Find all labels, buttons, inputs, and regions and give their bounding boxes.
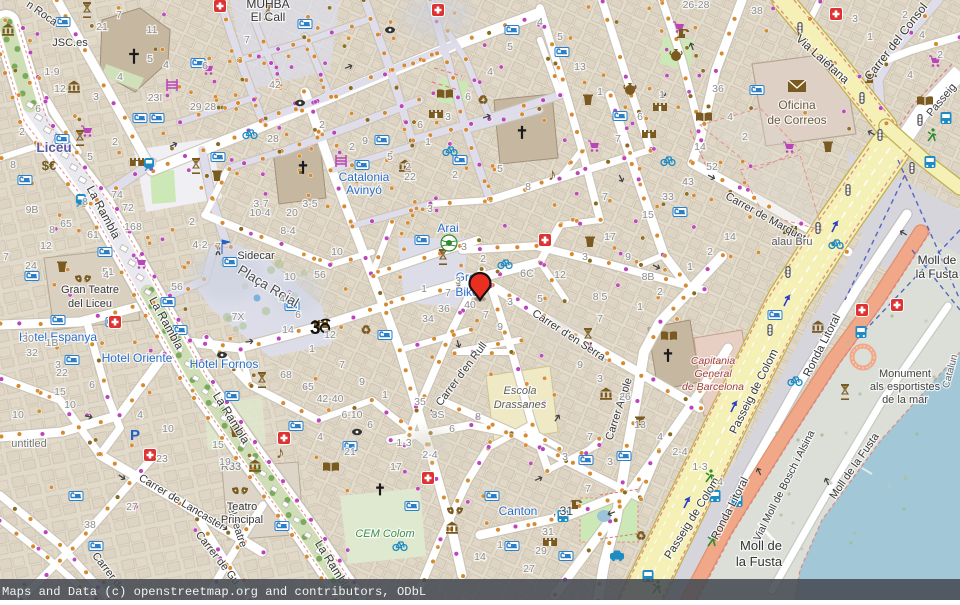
svg-text:Capitania: Capitania xyxy=(691,355,736,367)
svg-text:13: 13 xyxy=(634,419,646,431)
svg-text:10: 10 xyxy=(12,409,24,421)
svg-text:7: 7 xyxy=(483,309,489,321)
svg-text:de Barcelona: de Barcelona xyxy=(682,381,744,393)
svg-text:15: 15 xyxy=(54,386,66,398)
svg-text:P: P xyxy=(130,427,140,444)
svg-text:del Liceu: del Liceu xyxy=(68,298,112,310)
svg-text:General: General xyxy=(694,368,732,380)
svg-text:24: 24 xyxy=(25,260,37,272)
svg-text:JSC.es: JSC.es xyxy=(52,37,88,49)
svg-text:12: 12 xyxy=(54,83,66,95)
svg-text:36: 36 xyxy=(712,83,724,95)
svg-text:42-40: 42-40 xyxy=(317,393,344,405)
svg-text:4: 4 xyxy=(487,66,493,78)
svg-text:4: 4 xyxy=(137,409,143,421)
svg-text:Liceu: Liceu xyxy=(36,140,71,155)
svg-text:43: 43 xyxy=(682,176,694,188)
svg-text:3: 3 xyxy=(445,111,451,123)
svg-text:El Call: El Call xyxy=(251,10,286,24)
svg-text:la Fusta: la Fusta xyxy=(916,267,959,281)
svg-text:Moll de: Moll de xyxy=(918,253,957,267)
svg-text:72: 72 xyxy=(122,202,134,214)
svg-text:10: 10 xyxy=(284,271,296,283)
svg-text:9: 9 xyxy=(362,135,368,147)
svg-text:Teatro: Teatro xyxy=(227,501,258,513)
svg-text:38: 38 xyxy=(751,5,763,17)
svg-text:7: 7 xyxy=(445,287,451,299)
svg-text:3: 3 xyxy=(310,318,321,339)
svg-text:32: 32 xyxy=(26,347,38,359)
svg-text:1: 1 xyxy=(382,389,388,401)
svg-text:6C: 6C xyxy=(520,268,534,280)
svg-text:3: 3 xyxy=(455,275,461,287)
svg-text:38: 38 xyxy=(84,519,96,531)
svg-text:4: 4 xyxy=(919,29,925,41)
svg-text:1: 1 xyxy=(309,343,315,355)
svg-text:1: 1 xyxy=(687,261,693,273)
svg-text:Gran Teatre: Gran Teatre xyxy=(61,284,119,296)
svg-text:als esportistes: als esportistes xyxy=(870,381,941,393)
svg-text:6: 6 xyxy=(35,103,41,115)
svg-text:5: 5 xyxy=(557,31,563,43)
svg-text:14: 14 xyxy=(282,324,294,336)
svg-text:Principal: Principal xyxy=(221,514,263,526)
svg-text:35: 35 xyxy=(414,396,426,408)
svg-text:4: 4 xyxy=(317,431,323,443)
svg-text:4: 4 xyxy=(537,16,543,28)
svg-text:4: 4 xyxy=(727,111,733,123)
svg-text:21: 21 xyxy=(96,21,108,33)
svg-text:15: 15 xyxy=(642,209,654,221)
svg-text:33: 33 xyxy=(662,191,674,203)
svg-text:17: 17 xyxy=(604,231,616,243)
svg-text:5: 5 xyxy=(507,41,513,53)
svg-text:Canton: Canton xyxy=(499,504,538,518)
svg-text:2: 2 xyxy=(452,169,458,181)
svg-text:2: 2 xyxy=(742,131,748,143)
svg-text:7: 7 xyxy=(602,191,608,203)
svg-text:52: 52 xyxy=(706,161,718,173)
svg-text:6: 6 xyxy=(202,60,208,72)
svg-text:8: 8 xyxy=(475,411,481,423)
svg-text:4: 4 xyxy=(163,59,169,71)
svg-text:6: 6 xyxy=(449,423,455,435)
svg-text:2: 2 xyxy=(480,253,486,265)
svg-text:5: 5 xyxy=(387,151,393,163)
svg-text:Avinyó: Avinyó xyxy=(346,183,382,197)
svg-text:26: 26 xyxy=(619,391,631,403)
svg-text:2: 2 xyxy=(19,126,25,138)
svg-text:8: 8 xyxy=(525,181,531,193)
svg-text:4: 4 xyxy=(907,69,913,81)
svg-text:68: 68 xyxy=(280,369,292,381)
svg-text:6: 6 xyxy=(417,119,423,131)
svg-text:56: 56 xyxy=(171,281,183,293)
svg-text:6: 6 xyxy=(367,419,373,431)
svg-text:9: 9 xyxy=(625,251,631,263)
svg-text:11: 11 xyxy=(147,24,158,36)
svg-text:Escola: Escola xyxy=(503,385,536,397)
svg-text:7X: 7X xyxy=(232,311,245,323)
svg-text:14: 14 xyxy=(724,231,736,243)
svg-text:2: 2 xyxy=(902,9,908,21)
svg-text:2: 2 xyxy=(707,246,713,258)
svg-text:1: 1 xyxy=(597,86,603,98)
svg-text:3: 3 xyxy=(582,251,588,263)
svg-text:31: 31 xyxy=(542,526,554,538)
svg-text:36: 36 xyxy=(438,303,450,315)
svg-text:23: 23 xyxy=(156,453,168,465)
svg-text:2-4: 2-4 xyxy=(672,446,687,458)
svg-text:2: 2 xyxy=(937,49,943,61)
svg-text:3: 3 xyxy=(607,456,613,468)
svg-text:3: 3 xyxy=(507,296,513,308)
svg-text:29 28: 29 28 xyxy=(190,101,216,113)
svg-text:13: 13 xyxy=(574,61,586,73)
svg-text:19: 19 xyxy=(219,456,231,468)
svg-text:1-3: 1-3 xyxy=(692,461,707,473)
svg-text:2: 2 xyxy=(405,161,411,173)
svg-text:21: 21 xyxy=(344,446,356,458)
svg-text:CEM Colom: CEM Colom xyxy=(355,528,414,540)
svg-text:15: 15 xyxy=(212,439,224,451)
svg-text:9: 9 xyxy=(577,359,583,371)
svg-text:♻: ♻ xyxy=(478,93,489,107)
svg-text:8B: 8B xyxy=(642,271,655,283)
svg-text:14: 14 xyxy=(474,551,486,563)
svg-text:30: 30 xyxy=(22,333,34,345)
svg-text:Hotel Oriente: Hotel Oriente xyxy=(102,351,173,365)
svg-text:26-28: 26-28 xyxy=(683,0,710,11)
svg-text:9: 9 xyxy=(359,376,365,388)
svg-text:Hotel Fornos: Hotel Fornos xyxy=(190,357,259,371)
svg-text:7: 7 xyxy=(587,431,593,443)
svg-text:17: 17 xyxy=(390,461,402,473)
svg-text:3: 3 xyxy=(852,13,858,25)
svg-text:23I: 23I xyxy=(148,92,163,104)
svg-text:40: 40 xyxy=(464,299,476,311)
svg-text:7: 7 xyxy=(597,313,603,325)
svg-text:8-4: 8-4 xyxy=(280,225,295,237)
svg-text:4-2: 4-2 xyxy=(192,239,207,251)
svg-text:3S: 3S xyxy=(432,409,445,421)
svg-text:7: 7 xyxy=(3,251,9,263)
svg-text:7: 7 xyxy=(585,483,591,495)
svg-text:2: 2 xyxy=(319,119,325,131)
svg-text:Arai: Arai xyxy=(437,221,458,235)
svg-text:3-5: 3-5 xyxy=(302,198,317,210)
svg-text:Catalonia: Catalonia xyxy=(339,170,390,184)
svg-text:2: 2 xyxy=(112,136,118,148)
svg-text:5: 5 xyxy=(87,151,93,163)
svg-text:61: 61 xyxy=(87,229,99,241)
svg-text:3: 3 xyxy=(461,241,467,253)
svg-text:la Fusta: la Fusta xyxy=(736,554,783,569)
svg-text:4: 4 xyxy=(657,431,663,443)
svg-text:65: 65 xyxy=(60,218,72,230)
svg-text:1-3: 1-3 xyxy=(396,437,411,449)
svg-text:4: 4 xyxy=(279,293,285,305)
svg-text:4: 4 xyxy=(117,71,123,83)
svg-text:1B: 1B xyxy=(46,337,59,349)
svg-text:42: 42 xyxy=(269,79,281,91)
svg-text:9: 9 xyxy=(497,321,503,333)
svg-text:10-4: 10-4 xyxy=(249,207,270,219)
svg-text:1-9: 1-9 xyxy=(44,66,59,78)
svg-text:alau Bru: alau Bru xyxy=(772,236,813,248)
svg-text:12: 12 xyxy=(554,269,566,281)
svg-text:74: 74 xyxy=(111,189,123,201)
svg-text:5: 5 xyxy=(497,163,503,175)
svg-text:8: 8 xyxy=(10,159,16,171)
svg-text:2: 2 xyxy=(189,216,195,228)
svg-text:8 5: 8 5 xyxy=(593,291,608,303)
svg-text:Monument: Monument xyxy=(879,368,931,380)
svg-text:7: 7 xyxy=(615,133,621,145)
svg-text:65: 65 xyxy=(302,381,314,393)
svg-text:1: 1 xyxy=(867,31,873,43)
svg-text:♻: ♻ xyxy=(636,529,647,543)
svg-text:1: 1 xyxy=(421,283,427,295)
svg-text:3: 3 xyxy=(597,373,603,385)
svg-text:14: 14 xyxy=(694,141,706,153)
svg-text:12: 12 xyxy=(40,240,52,252)
svg-text:, 31: , 31 xyxy=(553,504,573,518)
svg-text:Oficina: Oficina xyxy=(778,98,816,112)
svg-text:1: 1 xyxy=(425,136,431,148)
svg-text:3: 3 xyxy=(93,91,99,103)
svg-text:♻: ♻ xyxy=(361,323,372,337)
svg-text:2: 2 xyxy=(657,286,663,298)
svg-text:1: 1 xyxy=(659,89,665,101)
svg-text:3: 3 xyxy=(562,451,568,463)
svg-text:34: 34 xyxy=(422,313,434,325)
svg-text:♪: ♪ xyxy=(548,165,557,184)
svg-text:6: 6 xyxy=(637,111,643,123)
svg-text:1: 1 xyxy=(497,539,503,551)
svg-text:6: 6 xyxy=(295,309,301,321)
svg-text:27: 27 xyxy=(126,501,138,513)
svg-text:➔: ➔ xyxy=(244,335,255,348)
svg-text:Moll de: Moll de xyxy=(740,538,782,553)
svg-text:20: 20 xyxy=(286,207,298,219)
svg-text:$€: $€ xyxy=(42,158,56,173)
svg-text:16: 16 xyxy=(124,221,136,233)
svg-text:29: 29 xyxy=(535,545,547,557)
svg-text:Maps and Data (c) openstreetma: Maps and Data (c) openstreetmap.org and … xyxy=(2,585,426,599)
svg-text:Drassanes: Drassanes xyxy=(494,399,547,411)
svg-text:de Correos: de Correos xyxy=(767,113,826,127)
svg-text:Sidecar: Sidecar xyxy=(237,250,275,262)
svg-text:12: 12 xyxy=(324,329,336,341)
svg-text:7: 7 xyxy=(215,241,221,253)
svg-text:8: 8 xyxy=(49,224,55,236)
svg-text:♪: ♪ xyxy=(276,443,285,462)
svg-text:4: 4 xyxy=(103,269,109,281)
svg-text:5: 5 xyxy=(147,53,153,65)
svg-text:2: 2 xyxy=(349,141,355,153)
svg-text:5: 5 xyxy=(537,293,543,305)
svg-text:6-10: 6-10 xyxy=(341,409,362,421)
svg-text:9B: 9B xyxy=(26,204,39,216)
svg-text:2-4: 2-4 xyxy=(422,449,437,461)
svg-text:56: 56 xyxy=(314,269,326,281)
svg-text:27: 27 xyxy=(523,563,535,575)
svg-text:6: 6 xyxy=(89,379,95,391)
svg-text:7: 7 xyxy=(244,34,250,46)
svg-text:7: 7 xyxy=(116,9,122,21)
svg-text:3: 3 xyxy=(427,203,433,215)
svg-text:1: 1 xyxy=(637,301,643,313)
svg-text:10: 10 xyxy=(162,423,174,435)
svg-text:28: 28 xyxy=(267,133,279,145)
svg-text:6: 6 xyxy=(465,91,471,103)
svg-text:de la mar: de la mar xyxy=(882,394,928,406)
svg-text:10: 10 xyxy=(64,399,76,411)
svg-text:8: 8 xyxy=(82,196,88,208)
svg-text:4: 4 xyxy=(717,476,723,488)
svg-text:untitled: untitled xyxy=(11,438,46,450)
svg-text:7: 7 xyxy=(339,359,345,371)
svg-text:10: 10 xyxy=(331,246,343,258)
svg-text:22: 22 xyxy=(56,367,68,379)
